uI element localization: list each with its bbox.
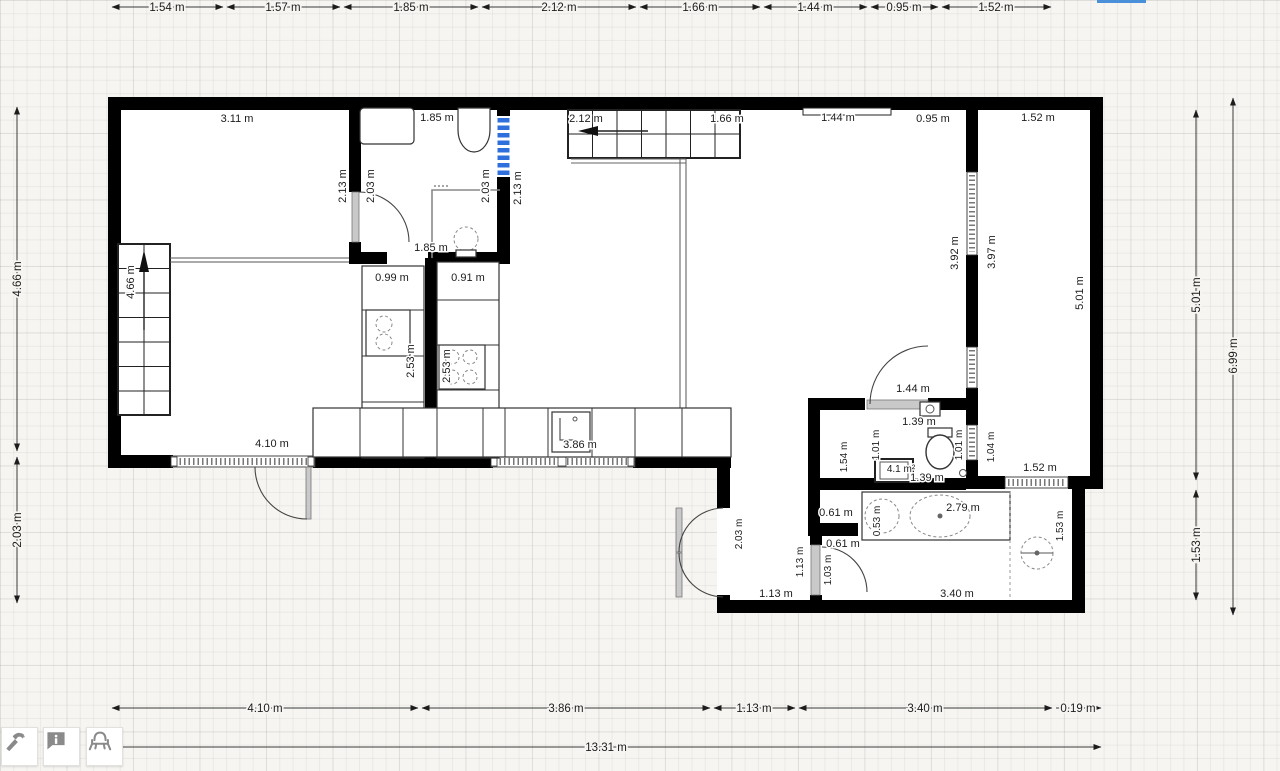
- furniture-tool-button[interactable]: [86, 727, 123, 766]
- room-dim-label: 3.11 m: [221, 113, 254, 125]
- room-dim-label: 2.79 m: [946, 502, 980, 514]
- room-dim-label-v: 1.04 m: [986, 432, 997, 463]
- room-dim-label-v: 3.97 m: [986, 235, 998, 269]
- floorplan-svg: 3.11 m 1.85 m 2.12 m 1.66 m 1.44 m 0.95 …: [0, 0, 1280, 771]
- wall-rightroom-a[interactable]: [966, 110, 978, 172]
- wall-top[interactable]: [108, 97, 1103, 110]
- room-dim-label-v: 2.13 m: [512, 171, 524, 205]
- info-bubble-icon: [44, 728, 68, 752]
- selection-indicator-top: [1097, 0, 1146, 3]
- dim-label-top: 1.85 m: [393, 2, 428, 14]
- window-slider-center[interactable]: [491, 456, 635, 467]
- wc-toilet[interactable]: [926, 428, 954, 469]
- counter-bottom-row[interactable]: [313, 408, 731, 457]
- room-dim-label: 1.44 m: [896, 383, 930, 395]
- wall-bath-bottom-a[interactable]: [349, 252, 387, 264]
- dim-label-left: 4.66 m: [12, 261, 24, 296]
- dim-label-bottom: 3.86 m: [548, 703, 583, 715]
- room-dim-label: 1.66 m: [710, 113, 744, 125]
- dim-label-top: 0.95 m: [886, 2, 921, 14]
- room-dim-label: 1.39 m: [902, 416, 936, 428]
- dim-label-right-total: 6.99 m: [1228, 338, 1240, 373]
- room-dim-label: 1.52 m: [1023, 462, 1057, 474]
- window-slider-left[interactable]: [171, 456, 315, 467]
- wall-rightroom-bottom-b[interactable]: [1068, 476, 1103, 489]
- dim-label-bottom-total: 13.31 m: [585, 742, 627, 754]
- room-dim-label: 0.99 m: [375, 272, 409, 284]
- wall-rightroom-b[interactable]: [966, 255, 978, 347]
- room-dim-label-v: 2.03 m: [480, 169, 492, 203]
- room-dim-label: 4.10 m: [255, 438, 289, 450]
- wall-bottom-a[interactable]: [108, 455, 173, 468]
- room-dim-label: 1.85 m: [414, 242, 448, 254]
- dim-label-bottom: 4.10 m: [247, 703, 282, 715]
- dim-label-top: 1.57 m: [265, 2, 300, 14]
- room-dim-label: 3.86 m: [563, 439, 597, 451]
- dim-label-top: 1.54 m: [149, 2, 184, 14]
- wall-entry-vert-b[interactable]: [810, 595, 822, 613]
- room-dim-label: 1.13 m: [759, 588, 793, 600]
- room-dim-label-v: 1.54 m: [839, 442, 850, 473]
- dim-label-bottom: 1.13 m: [736, 703, 771, 715]
- dim-label-bottom: 0.19 m: [1060, 703, 1095, 715]
- annotation-tool-button[interactable]: [43, 727, 80, 766]
- room-dim-label: 0.95 m: [916, 113, 950, 125]
- wall-rightroom-d[interactable]: [966, 460, 978, 489]
- wall-lower-right[interactable]: [1072, 489, 1085, 613]
- wall-rightroom-c[interactable]: [966, 388, 978, 425]
- build-tool-button[interactable]: [1, 727, 38, 766]
- door-french[interactable]: [676, 508, 723, 597]
- dim-label-top: 1.52 m: [978, 2, 1013, 14]
- selected-wall-segment[interactable]: [496, 116, 511, 177]
- wall-entry-horiz[interactable]: [810, 523, 858, 536]
- dim-label-right: 1.53 m: [1191, 527, 1203, 562]
- room-dim-label-v: 2.03 m: [734, 519, 745, 550]
- room-dim-label-v: 0.53 m: [872, 506, 883, 537]
- room-dim-label-v: 1.03 m: [823, 555, 834, 586]
- room-dim-label-v: 1.01 m: [954, 430, 965, 461]
- room-dim-label: 0.61 m: [819, 507, 853, 519]
- hammer-icon: [2, 728, 26, 752]
- room-dim-label-v: 1.01 m: [871, 430, 882, 461]
- room-dim-label-v: 4.66 m: [125, 265, 137, 299]
- wall-lower-left-a[interactable]: [717, 455, 730, 508]
- room-dim-label: 2.12 m: [569, 113, 603, 125]
- wc-sink-small[interactable]: [920, 402, 940, 416]
- door-front[interactable]: [255, 467, 311, 519]
- dim-label-top: 1.66 m: [682, 2, 717, 14]
- shower-tray: [360, 108, 414, 144]
- wall-right[interactable]: [1090, 97, 1103, 489]
- window-wc[interactable]: [967, 425, 977, 460]
- room-dim-label: 3.40 m: [940, 588, 974, 600]
- armchair-icon: [87, 728, 113, 754]
- room-dim-label-v: 1.53 m: [1055, 511, 1066, 542]
- room-dim-label: 1.39 m: [910, 472, 944, 484]
- floorplan-canvas[interactable]: 3.11 m 1.85 m 2.12 m 1.66 m 1.44 m 0.95 …: [0, 0, 1280, 771]
- room-dim-label-v: 3.92 m: [949, 236, 961, 270]
- wall-bath-left-a[interactable]: [349, 110, 361, 192]
- room-dim-label-v: 2.53 m: [441, 349, 453, 383]
- room-dim-label-v: 2.53 m: [405, 344, 417, 378]
- window-rightroom-2[interactable]: [967, 347, 977, 388]
- dim-label-bottom: 3.40 m: [907, 703, 942, 715]
- dim-label-top: 1.44 m: [797, 2, 832, 14]
- room-dim-label-v: 2.13 m: [337, 169, 349, 203]
- dim-label-right: 5.01 m: [1191, 277, 1203, 312]
- room-dim-label-v: 5.01 m: [1074, 276, 1086, 310]
- room-dim-label: 1.52 m: [1021, 112, 1055, 124]
- dim-label-left: 2.03 m: [12, 512, 24, 547]
- room-dim-label: 1.85 m: [420, 112, 454, 124]
- window-rightroom-1[interactable]: [967, 172, 977, 255]
- wall-lower-bottom[interactable]: [717, 600, 1085, 613]
- room-dim-label-v: 2.03 m: [365, 169, 377, 203]
- vanity-counter[interactable]: [862, 492, 1010, 540]
- wall-wc-left[interactable]: [808, 398, 820, 490]
- room-dim-label: 1.44 m: [821, 112, 855, 124]
- room-dim-label-v: 1.13 m: [795, 547, 806, 578]
- window-rightroom-bottom[interactable]: [1005, 477, 1068, 488]
- room-dim-label: 0.61 m: [826, 538, 860, 550]
- dim-label-top: 2.12 m: [541, 2, 576, 14]
- bathtub-top: [458, 108, 490, 152]
- room-dim-label: 0.91 m: [451, 272, 485, 284]
